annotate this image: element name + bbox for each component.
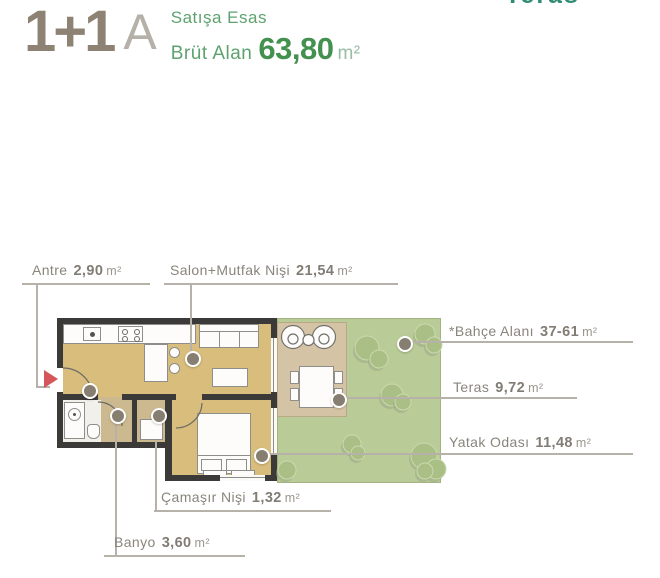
wall-top [57,318,277,324]
leader-antre-vertical [36,283,38,388]
burner [122,336,128,342]
leader-salon-underline [164,283,398,285]
caption-line2-text: Brüt Alan [171,43,253,64]
bedroom-window-right [271,408,277,455]
room-label-bahce: *Bahçe Alanı37-61m² [449,323,597,340]
terrace-chair [290,371,299,384]
wall-left-upper [57,318,63,368]
gross-area-caption: Satışa Esas Brüt Alan63,80m² [171,8,361,67]
wall-bedroom-left [165,397,172,481]
terrace-dining-table [299,366,334,408]
gross-area-value: 63,80 [258,31,333,66]
leader-camasir-vertical [155,441,157,511]
wall-bath-niche [132,400,137,442]
entrance-arrow-icon [44,370,58,388]
bedroom-window-line [273,408,274,455]
bedroom-window-bottom-line [220,477,265,478]
marker-salon [185,351,201,367]
leader-bahce [402,341,633,343]
coffee-table [212,368,248,387]
burner [134,336,140,342]
marker-bahce [397,336,413,352]
caption-line2: Brüt Alan63,80m² [171,31,361,67]
plan-type-logo: 1+1 [24,4,113,60]
marker-teras [331,392,347,408]
burner [122,329,128,335]
leader-yatak [259,453,633,455]
sink-dot [73,413,76,416]
marker-camasir [151,408,167,424]
block-variant-letter: A [123,4,156,60]
leader-camasir-underline [154,510,331,512]
sofa-cushion-line [239,331,240,347]
leader-antre-underline [22,283,150,285]
plan-overlay-graphics [0,0,660,578]
sofa-cushion-line [219,331,220,347]
room-label-antre: Antre2,90m² [32,262,122,279]
stool [169,347,180,358]
header: 1+1 A Satışa Esas Brüt Alan63,80m² [24,4,361,67]
wall-left-lower [57,392,63,448]
terrace-chair [334,371,343,384]
sofa [199,324,259,348]
marker-banyo [110,408,126,424]
kitchen-island [144,344,168,382]
caption-line1: Satışa Esas [171,8,361,28]
sofa-back-line [200,331,258,332]
room-label-camasir: Çamaşır Nişi1,32m² [161,489,300,506]
bed-line [198,455,250,456]
leader-banyo-underline [104,555,245,557]
room-label-yatak: Yatak Odası11,48m² [449,434,591,451]
stool [169,363,180,374]
floorplan-page: 1+1 A Satışa Esas Brüt Alan63,80m² Teras [0,0,660,578]
balcony-door-line [273,338,274,392]
burner [134,329,140,335]
room-label-teras: Teras9,72m² [453,379,543,396]
balcony-door [271,338,277,392]
wall-mid-h3 [202,394,277,400]
gross-area-unit: m² [337,43,360,64]
leader-teras [336,397,577,399]
toilet [87,424,100,439]
room-label-salon: Salon+Mutfak Nişi21,54m² [170,262,353,279]
terrace-chair [290,388,299,401]
marker-yatak [254,448,270,464]
leader-salon-vertical [190,283,192,353]
room-label-banyo: Banyo3,60m² [114,534,210,551]
sink-drain [90,332,95,337]
bedroom-window-bottom [220,475,265,481]
marker-antre [82,383,98,399]
clipped-project-text: Teras [505,0,645,8]
